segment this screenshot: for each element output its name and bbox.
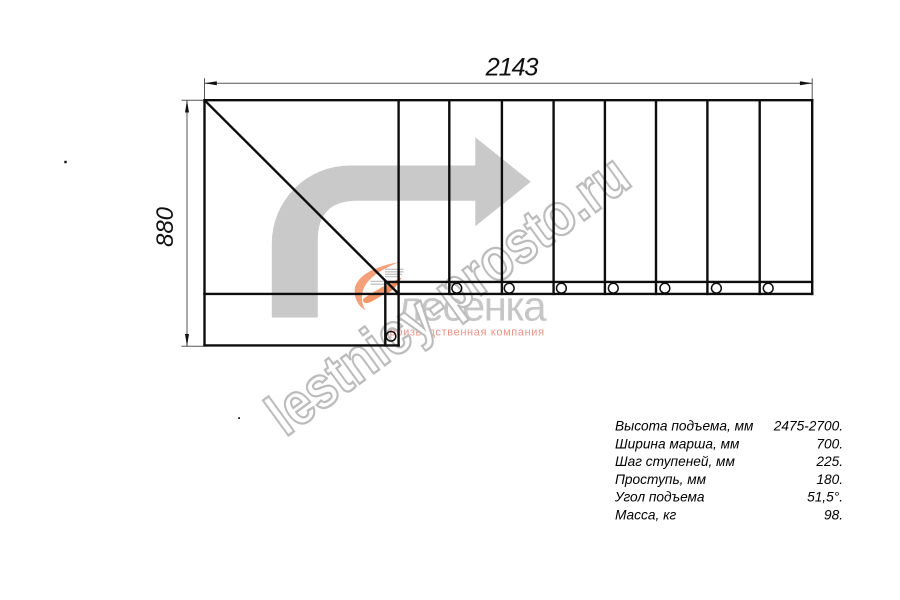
svg-text:2143: 2143 (485, 53, 539, 81)
svg-text:Проступь, мм: Проступь, мм (615, 472, 707, 487)
svg-text:180.: 180. (816, 472, 843, 487)
svg-text:700.: 700. (816, 436, 843, 451)
svg-text:Шаг ступеней, мм: Шаг ступеней, мм (615, 454, 735, 469)
svg-text:880: 880 (152, 206, 179, 247)
svg-text:2475-2700.: 2475-2700. (773, 419, 843, 434)
svg-text:Ширина марша, мм: Ширина марша, мм (615, 436, 740, 451)
svg-text:98.: 98. (824, 508, 843, 523)
svg-text:Масса, кг: Масса, кг (615, 508, 677, 523)
svg-text:225.: 225. (815, 454, 843, 469)
svg-text:Высота подъема, мм: Высота подъема, мм (615, 419, 754, 434)
svg-text:Угол подъема: Угол подъема (614, 490, 705, 505)
svg-text:51,5°.: 51,5°. (807, 490, 843, 505)
